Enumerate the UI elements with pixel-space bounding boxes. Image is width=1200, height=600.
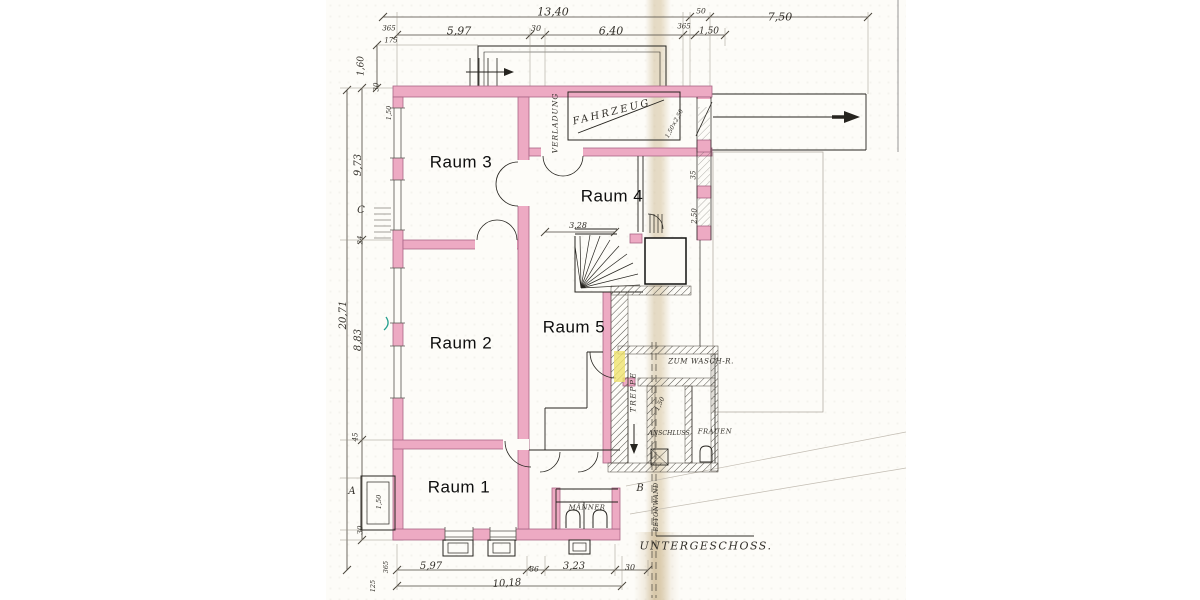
annotation-treppe: TREPPE [629,372,637,413]
annotation-anschluss: ANSCHLUSS [648,431,690,437]
dim-right-250: 2,50 [692,208,699,224]
annotation-betonwand: BETONWAND [654,482,660,531]
main-staircase [575,214,686,292]
entry-arrow-icon [504,68,514,76]
dim-bottom-597: 5,97 [420,562,442,572]
dim-left-45: 45 [353,433,360,442]
yellow-highlight [614,351,625,382]
dim-top-50: 50 [696,7,706,15]
dim-top-175: 175 [384,38,397,45]
shaft [645,238,686,284]
dim-bottom-30: 30 [625,564,635,572]
dim-left-150-wall: 1,50 [386,106,393,120]
annotation-zum-wasch: ZUM WASCH-R. [668,357,734,364]
marker-a: A [348,487,355,497]
dim-top-total: 13,40 [537,7,569,18]
marker-b: B [636,484,643,494]
dim-top-640: 6,40 [599,26,624,37]
driveway [712,94,866,150]
room-label-raum-5: Raum 5 [543,319,606,336]
dim-left-30-lower: 30 [358,526,365,535]
dim-left-883: 8,83 [354,329,364,351]
dim-top-150: 1,50 [699,28,719,37]
green-check-mark [384,317,388,330]
annotation-maenner: MÄNNER [569,505,606,512]
toilet-icon [700,446,712,462]
driveway-arrow-icon [844,111,860,123]
small-steps [650,214,662,233]
dim-right-35: 35 [691,171,698,180]
dim-bottom-86: 86 [529,565,539,573]
marker-c: C [357,206,365,216]
dim-left-365: 365 [383,561,390,573]
annotation-verladung: VERLADUNG [551,93,559,154]
floorplan-canvas: Raum 3Raum 4Raum 2Raum 5Raum 1FAHRZEUGVE… [0,0,1200,600]
dim-left-24: 24 [358,236,365,245]
dim-bottom-1018: 10,18 [492,578,521,590]
urinal-icon [566,510,580,528]
room-label-raum-3: Raum 3 [430,154,493,171]
dim-inner-328: 3,28 [569,222,587,230]
dim-top-597: 5,97 [447,26,472,37]
dim-top-365-left: 365 [382,26,395,33]
room-label-raum-4: Raum 4 [581,188,644,205]
annotation-frauen: FRAUEN [698,429,732,436]
plan-title-untergeschoss: UNTERGESCHOSS. [640,541,773,552]
dim-left-2071: 20,71 [339,301,349,330]
dim-left-150-bay: 1,50 [376,495,383,509]
dim-left-125: 125 [370,580,377,592]
left-wall-steps [374,208,391,238]
dim-top-750: 7,50 [768,12,793,23]
dim-left-30-upper: 30 [374,83,381,92]
dim-left-973: 9,73 [354,154,364,176]
urinal-icon [593,510,607,528]
dim-left-160: 1,60 [358,56,367,76]
room-label-raum-2: Raum 2 [430,335,493,352]
room-label-raum-1: Raum 1 [428,479,491,496]
stair-down-arrow-icon [630,444,638,454]
dim-bottom-323: 3,23 [563,562,585,572]
dim-top-30: 30 [531,25,541,33]
dim-top-365-right: 365 [677,24,690,31]
